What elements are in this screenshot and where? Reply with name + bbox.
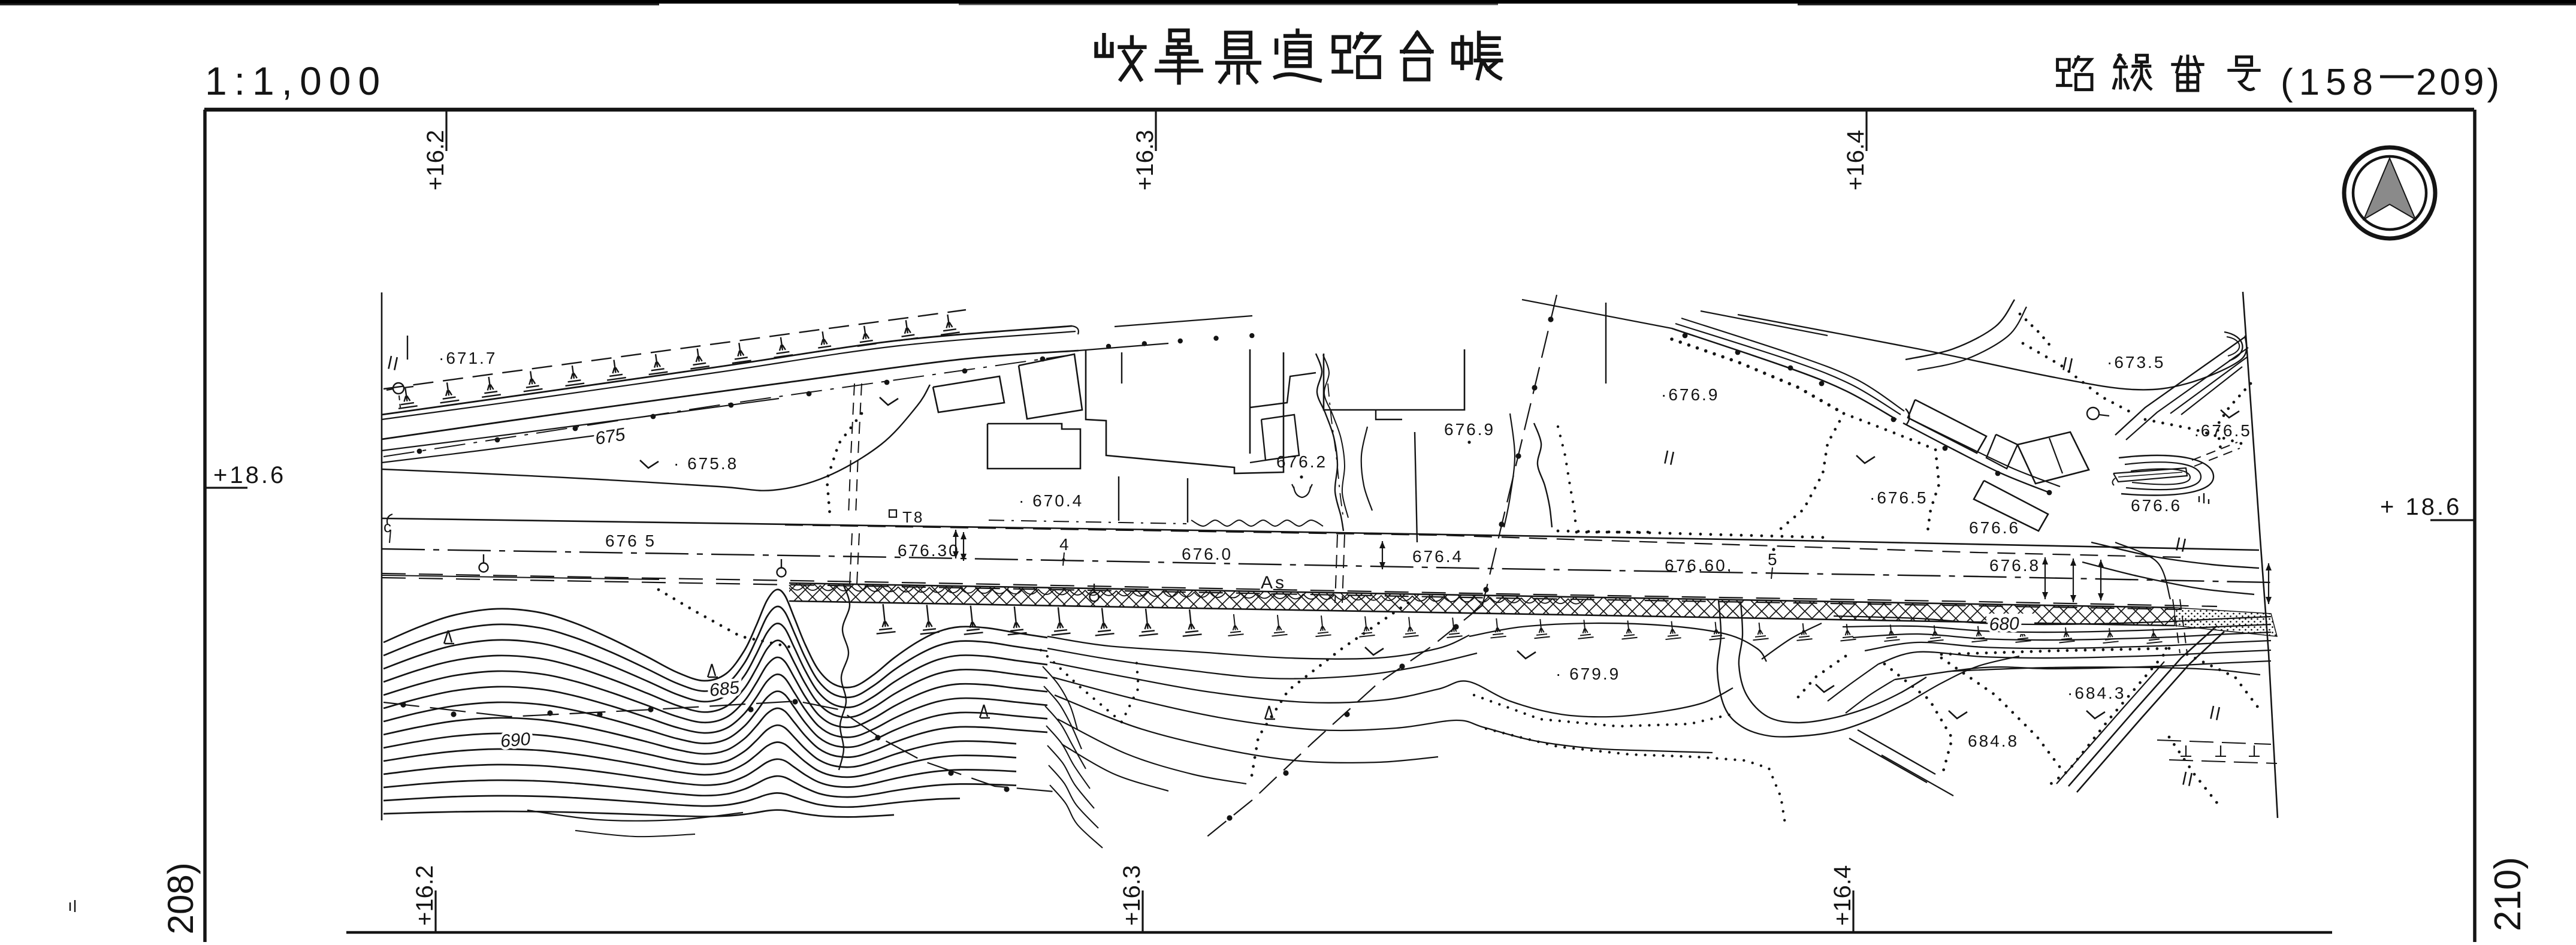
svg-text:676.4: 676.4	[1412, 547, 1463, 566]
svg-text:+16.3: +16.3	[1132, 130, 1158, 191]
svg-text:· 675.8: · 675.8	[674, 454, 738, 473]
svg-text:· 679.9: · 679.9	[1556, 665, 1620, 683]
svg-text:- 208): - 208)	[161, 862, 201, 942]
svg-text:+16.2: +16.2	[422, 130, 449, 191]
svg-text:·684.3: ·684.3	[2067, 684, 2125, 702]
svg-text:+16.3: +16.3	[1119, 865, 1145, 926]
svg-text:·676.5: ·676.5	[1870, 488, 1928, 507]
svg-text:+16.4: +16.4	[1829, 865, 1856, 926]
svg-text:- 210): - 210)	[2487, 857, 2529, 942]
svg-text:+16.4: +16.4	[1843, 130, 1869, 191]
svg-text:+16.2: +16.2	[412, 865, 438, 926]
svg-text:T8: T8	[902, 508, 924, 526]
svg-text:· 670.4: · 670.4	[1019, 491, 1083, 510]
svg-text:676.30: 676.30	[898, 541, 960, 560]
svg-text:+18.6: +18.6	[213, 462, 286, 488]
svg-text:676.6: 676.6	[1969, 518, 2020, 537]
svg-text:684.8: 684.8	[1968, 732, 2019, 750]
svg-text:As: As	[1261, 573, 1287, 593]
svg-text:(158: (158	[2281, 62, 2379, 103]
svg-text:690: 690	[500, 729, 531, 751]
svg-text:1:1,000: 1:1,000	[205, 59, 387, 103]
svg-text:676.8: 676.8	[1989, 556, 2040, 575]
svg-text:·671.7: ·671.7	[439, 349, 497, 367]
svg-text:676.9: 676.9	[1444, 420, 1495, 439]
svg-text:4: 4	[1059, 535, 1069, 554]
svg-text:209): 209)	[2416, 62, 2502, 103]
svg-text:·673.5: ·673.5	[2107, 353, 2165, 372]
svg-text:685: 685	[708, 678, 741, 701]
svg-text:676.0: 676.0	[1182, 545, 1233, 563]
svg-text:680: 680	[1989, 614, 2019, 635]
svg-text:676.6: 676.6	[2131, 496, 2182, 515]
svg-text:·676.9: ·676.9	[1661, 385, 1719, 404]
svg-text:+ 18.6: + 18.6	[2380, 494, 2462, 520]
svg-text:5: 5	[1768, 550, 1777, 569]
svg-text:676 5: 676 5	[605, 532, 656, 550]
svg-text:676.2: 676.2	[1276, 452, 1327, 471]
svg-text:.676.5: .676.5	[2194, 421, 2252, 440]
svg-text:676.60,: 676.60,	[1665, 556, 1733, 575]
